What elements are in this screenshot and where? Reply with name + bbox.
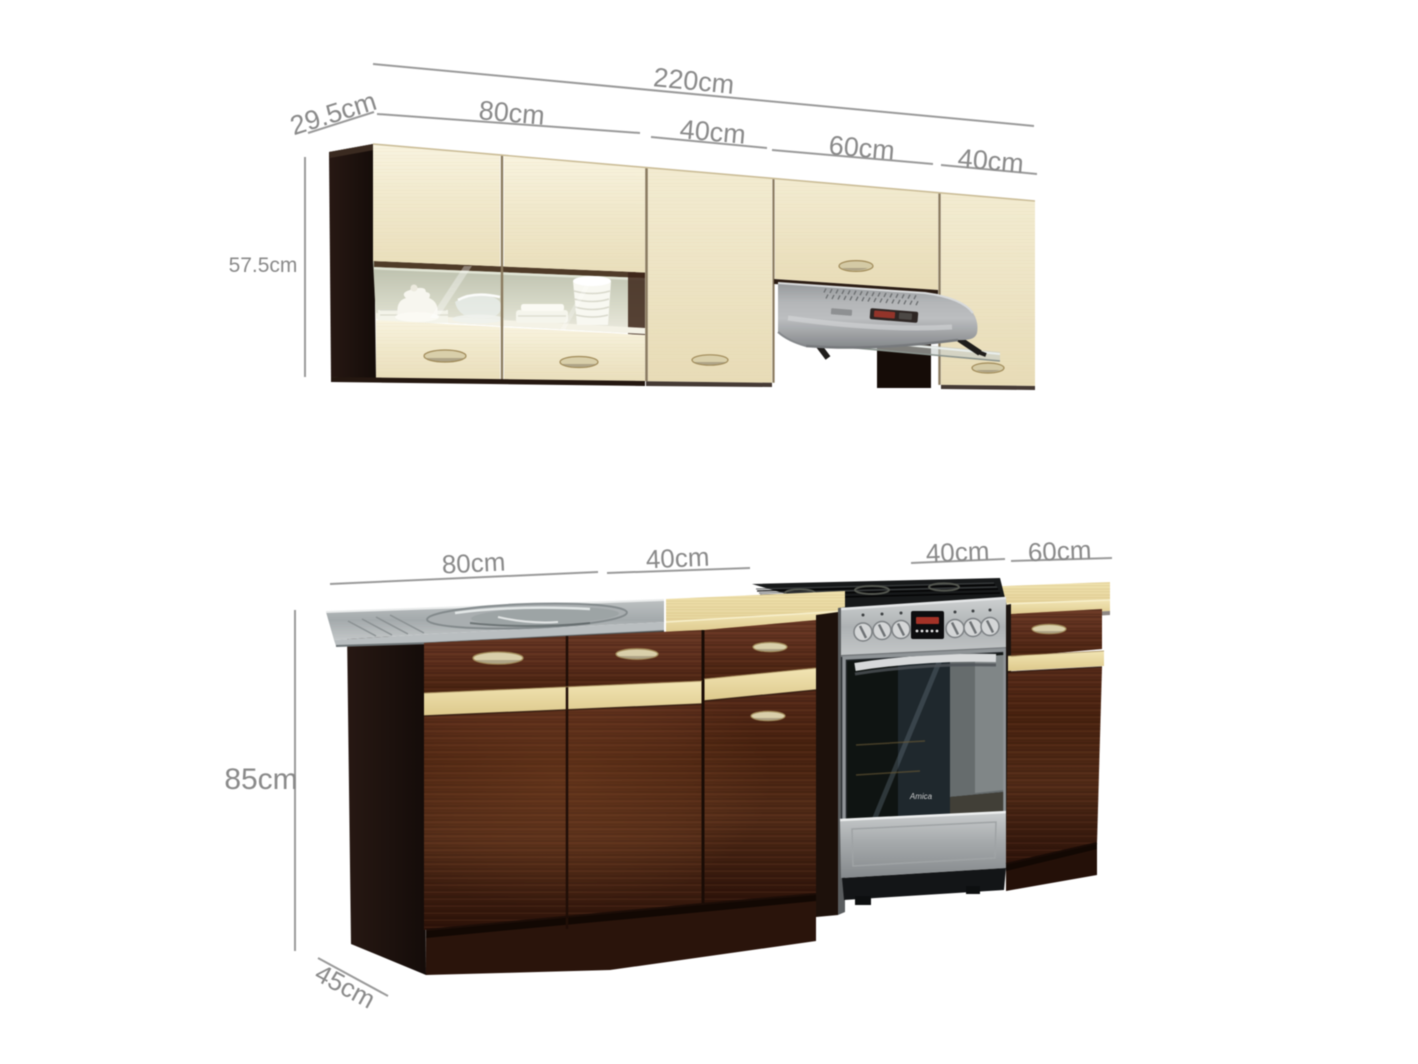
svg-text:60cm: 60cm — [828, 130, 896, 166]
svg-text:40cm: 40cm — [925, 536, 990, 569]
svg-text:45cm: 45cm — [310, 958, 380, 1015]
svg-text:40cm: 40cm — [957, 143, 1025, 179]
svg-text:220cm: 220cm — [652, 62, 736, 99]
svg-text:29.5cm: 29.5cm — [287, 86, 380, 141]
svg-text:60cm: 60cm — [1027, 535, 1092, 568]
svg-text:40cm: 40cm — [679, 114, 747, 150]
svg-text:85cm: 85cm — [224, 763, 297, 796]
svg-text:80cm: 80cm — [441, 547, 506, 580]
svg-text:Amica: Amica — [909, 792, 933, 801]
svg-text:40cm: 40cm — [645, 542, 710, 575]
svg-text:80cm: 80cm — [478, 95, 546, 131]
svg-text:57.5cm: 57.5cm — [229, 254, 298, 277]
